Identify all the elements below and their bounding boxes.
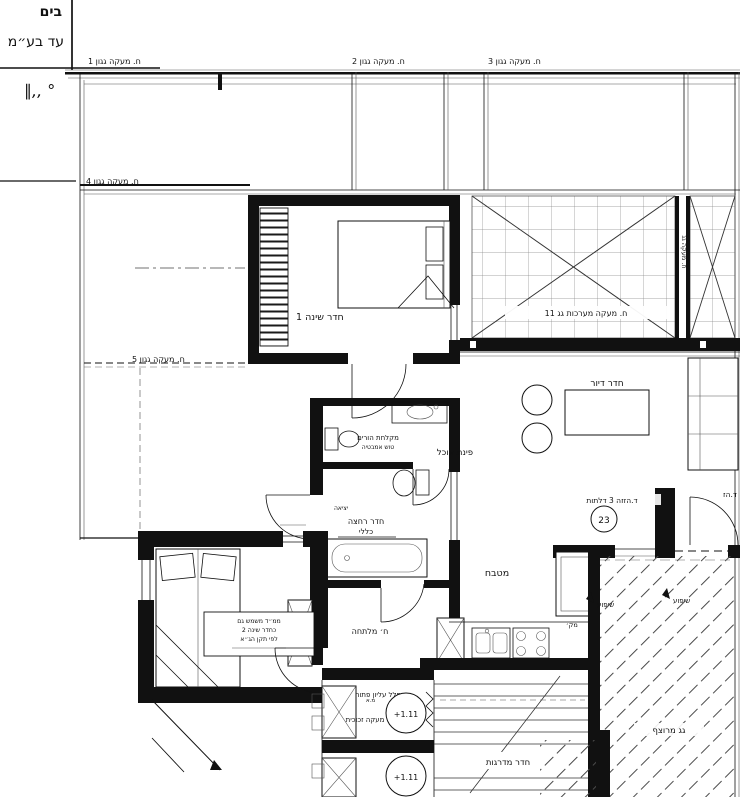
wall — [323, 462, 413, 469]
niche-label: יציאה — [334, 505, 348, 512]
bath-label-2: כללי — [359, 527, 373, 536]
wall — [449, 398, 460, 472]
mamad-note-1: ממ״ד משמש גם — [237, 618, 281, 625]
armchair — [522, 385, 552, 415]
dressing-label: ח׳ מלתחה — [352, 627, 389, 636]
bath-label-1: חדר רחצה — [348, 517, 384, 526]
floor-plan: בים עד בע״מ ∥,, ° ח. מעקה גגון 1 ח. מעקה… — [0, 0, 740, 797]
door-label-cut: ד.הז — [723, 490, 737, 499]
shower-label-2: טוש אמבטיה — [362, 444, 395, 451]
wall-band — [460, 338, 740, 351]
table — [565, 390, 649, 435]
kitchen-label: מטבח — [485, 568, 509, 579]
wall — [322, 740, 434, 753]
shaft-box — [437, 618, 464, 662]
parapet-label-3: ח. מעקה גגון 3 — [488, 57, 541, 66]
slope-label-2: שיפוע — [673, 597, 690, 605]
wall — [248, 353, 348, 364]
sliding-door-label: ד.הזזה 3 דלתות — [586, 496, 637, 505]
bathtub — [327, 539, 427, 577]
void-label-2: מעקה זכוכית — [346, 716, 385, 724]
scale-mark: ∥,, ° — [24, 81, 55, 100]
wall — [138, 687, 328, 703]
wall — [413, 353, 460, 364]
wall — [138, 531, 154, 560]
titleblock-text-1: בים — [40, 4, 62, 20]
armchair — [522, 423, 552, 453]
wall — [138, 531, 283, 547]
level-mark-1: +1.11 — [394, 710, 419, 719]
wall — [310, 398, 323, 495]
hatch-area — [540, 740, 600, 797]
top-parapet-wall — [65, 72, 740, 75]
sofa — [688, 358, 738, 470]
mamad-note-3: לפי תקן הג״א — [240, 636, 278, 643]
bedroom1-label: חדר שינה 1 — [296, 312, 344, 323]
level-mark-2: +1.11 — [394, 773, 419, 782]
wall — [420, 658, 600, 670]
parapet-label-1: ח. מעקה גגון 1 — [88, 57, 141, 66]
tech-roof-side-label: ח. מעקה גג — [680, 235, 688, 268]
wall — [248, 195, 460, 206]
parapet-label-2: ח. מעקה גגון 2 — [352, 57, 405, 66]
wall — [322, 668, 434, 680]
tech-roof-label: ח. מעקה מערכות גג 11 — [545, 309, 628, 318]
door-tag: 23 — [598, 516, 609, 526]
wall — [675, 196, 679, 338]
wall — [248, 195, 259, 364]
wall — [596, 730, 610, 797]
wardrobe — [260, 208, 288, 346]
wall — [424, 580, 449, 588]
living-label: חדר דיור — [590, 379, 623, 389]
slope-label-1: שיפוע — [597, 601, 614, 609]
dining-label: פינת אוכל — [437, 448, 473, 458]
tech-roof: ח. מעקה גג ח. מעקה מערכות גג 11 — [460, 196, 740, 356]
roof-terrace-label: גג מרוצף — [652, 726, 686, 736]
shower-label-1: מקלחת הורים — [357, 434, 399, 442]
bed-double — [338, 221, 454, 308]
mamad-note-2: כחדר שינה 2 — [242, 627, 276, 634]
stairs-label: חדר מדרגות — [486, 758, 530, 768]
wall — [323, 580, 381, 588]
wall — [449, 195, 460, 305]
titleblock-text-2: עד בע״מ — [8, 34, 64, 50]
